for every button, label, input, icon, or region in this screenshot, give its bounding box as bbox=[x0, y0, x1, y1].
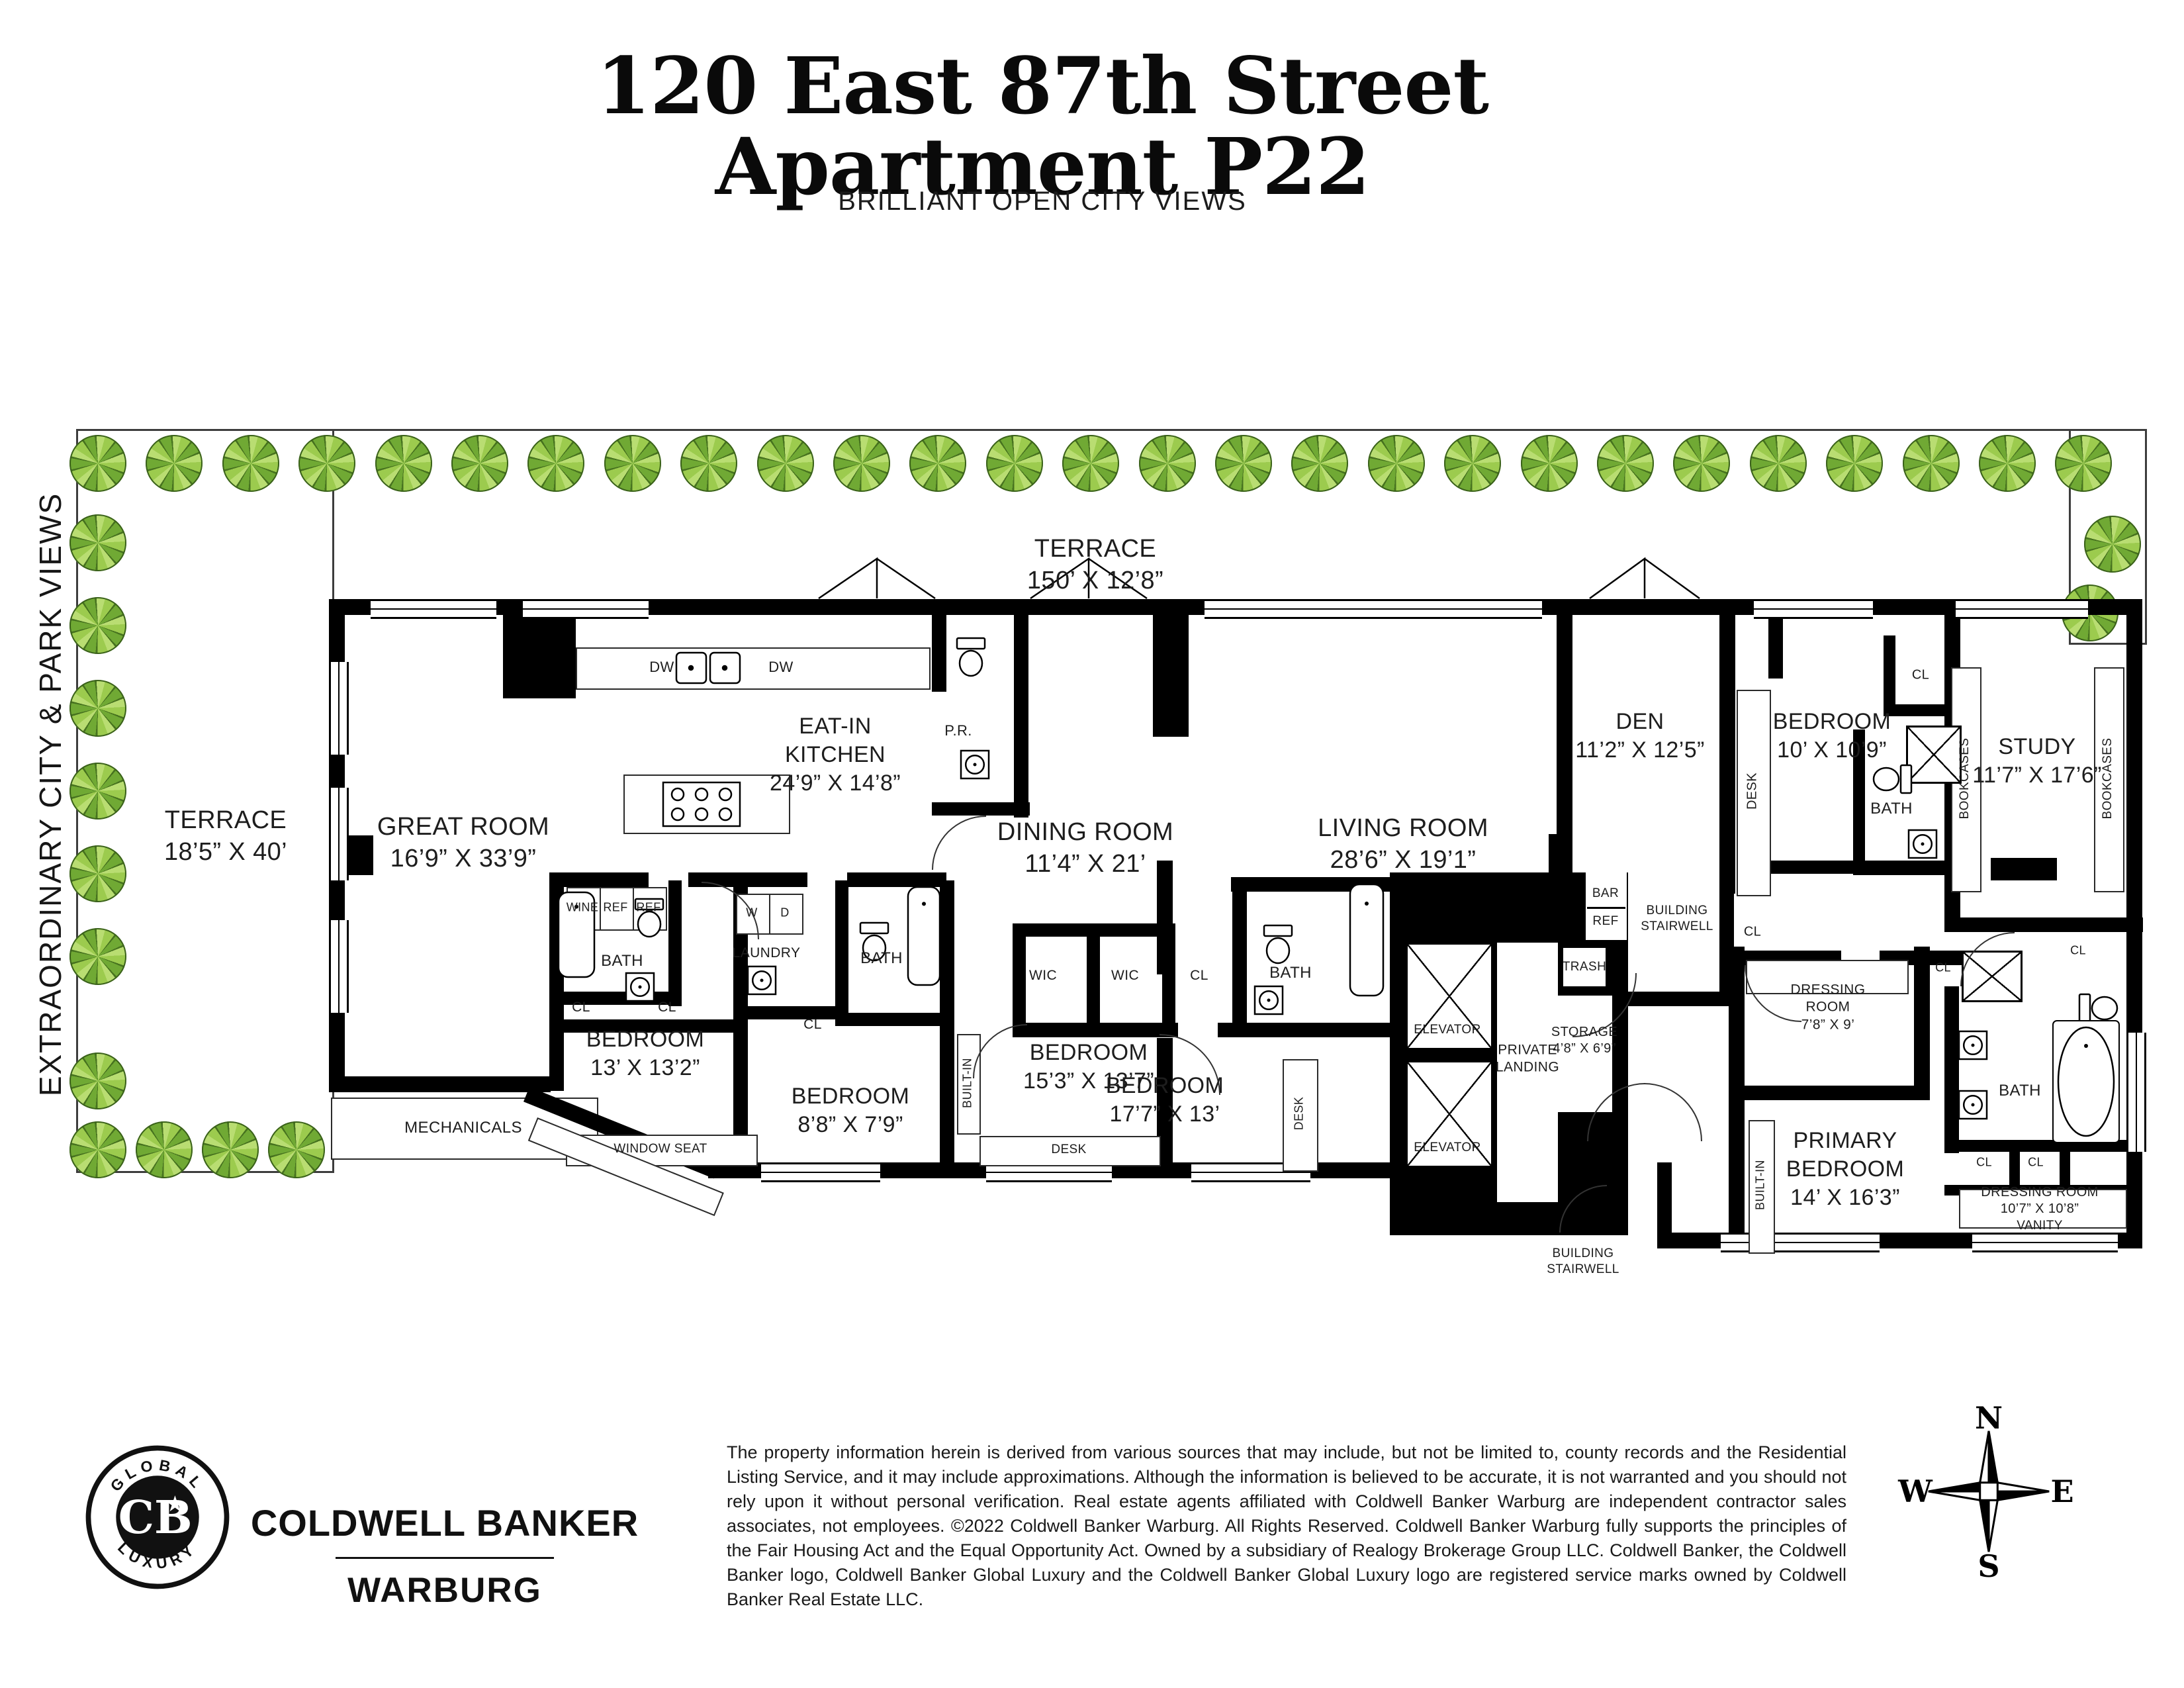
tree-icon bbox=[69, 1053, 126, 1109]
floorplan-page: 120 East 87th Street Apartment P22 BRILL… bbox=[0, 0, 2184, 1688]
brand-name: COLDWELL BANKER bbox=[251, 1501, 639, 1544]
label-ref-2: REF bbox=[636, 900, 660, 915]
window bbox=[329, 662, 349, 755]
label-dw-1: DW bbox=[649, 658, 674, 677]
tree-icon bbox=[1368, 435, 1425, 492]
label-wine: WINE bbox=[567, 900, 599, 915]
wall bbox=[668, 880, 682, 1006]
compass-w: W bbox=[1898, 1474, 1933, 1509]
label-great-room: GREAT ROOM 16’9” X 33’9” bbox=[377, 812, 549, 875]
millwork-outline bbox=[576, 647, 931, 690]
toilet-icon bbox=[1877, 759, 1907, 800]
tree-icon bbox=[375, 435, 432, 492]
label-wic-2: WIC bbox=[1111, 967, 1139, 984]
wall bbox=[733, 1006, 846, 1019]
label-building-stairwell-2: BUILDING STAIRWELL bbox=[1547, 1246, 1619, 1278]
side-view-note: EXTRAORDINARY CITY & PARK VIEWS bbox=[32, 492, 68, 1096]
wall bbox=[329, 1076, 551, 1092]
label-bedroom-17: BEDROOM 17’7” X 13’ bbox=[1106, 1072, 1224, 1129]
page-subtitle: BRILLIANT OPEN CITY VIEWS bbox=[838, 187, 1247, 216]
door-swing-icon bbox=[932, 816, 986, 870]
bathtub-icon bbox=[1349, 883, 1385, 997]
label-cl-7: CL bbox=[1976, 1155, 1992, 1170]
label-desk-15: DESK bbox=[1051, 1142, 1086, 1158]
wall bbox=[1914, 947, 1930, 1100]
door-swing-icon bbox=[1644, 1083, 1702, 1141]
label-terrace-top: TERRACE 150’ X 12’8” bbox=[1027, 534, 1163, 597]
tree-icon bbox=[833, 435, 890, 492]
label-built-in-2: BUILT-IN bbox=[1753, 1160, 1768, 1210]
french-door-icon bbox=[817, 557, 936, 600]
window bbox=[761, 1162, 880, 1182]
label-dressing-room-1: DRESSING ROOM 7’8” X 9’ bbox=[1791, 981, 1866, 1033]
label-cl-4: CL bbox=[1190, 967, 1208, 984]
wall bbox=[1944, 917, 2143, 932]
door-swing-icon bbox=[1960, 932, 2015, 986]
tree-icon bbox=[1903, 435, 1960, 492]
tree-icon bbox=[1291, 435, 1348, 492]
label-trash: TRASH bbox=[1563, 959, 1606, 975]
tree-icon bbox=[757, 435, 814, 492]
tree-icon bbox=[1444, 435, 1501, 492]
wall bbox=[1991, 858, 2057, 880]
label-laundry: LAUNDRY bbox=[733, 945, 801, 962]
label-primary-bedroom: PRIMARY BEDROOM 14’ X 16’3” bbox=[1786, 1127, 1904, 1211]
window bbox=[1721, 1233, 1880, 1252]
tree-icon bbox=[69, 928, 126, 985]
brand-subname: WARBURG bbox=[347, 1570, 542, 1611]
tree-icon bbox=[986, 435, 1043, 492]
label-desk-den: DESK bbox=[1744, 773, 1760, 810]
label-eat-in-kitchen: EAT-IN KITCHEN 24’9” X 14’8” bbox=[770, 712, 901, 797]
legal-disclaimer: The property information herein is deriv… bbox=[727, 1440, 1846, 1612]
label-den: DEN 11’2” X 12’5” bbox=[1575, 708, 1704, 765]
tree-icon bbox=[69, 1121, 126, 1178]
wall bbox=[1628, 992, 1734, 1006]
tree-icon bbox=[451, 435, 508, 492]
window bbox=[2126, 1033, 2146, 1152]
tree-icon bbox=[1139, 435, 1196, 492]
wall bbox=[549, 992, 675, 1005]
label-cl-6: CL bbox=[2070, 943, 2086, 959]
window bbox=[329, 788, 349, 880]
label-building-stairwell-1: BUILDING STAIRWELL bbox=[1641, 903, 1713, 935]
label-terrace-left: TERRACE 18’5” X 40’ bbox=[164, 805, 287, 868]
bathtub-icon bbox=[907, 886, 941, 986]
label-elevator-2: ELEVATOR bbox=[1414, 1140, 1480, 1156]
label-dw-2: DW bbox=[768, 658, 793, 677]
label-washer: W bbox=[746, 906, 757, 921]
wall bbox=[1944, 986, 1959, 1153]
core-room bbox=[1586, 872, 1627, 940]
label-vanity: VANITY bbox=[2017, 1218, 2063, 1234]
tree-icon bbox=[69, 435, 126, 492]
label-bedroom-8: BEDROOM 8’8” X 7’9” bbox=[792, 1082, 909, 1139]
label-dining-room: DINING ROOM 11’4” X 21’ bbox=[997, 817, 1173, 880]
wall bbox=[1153, 599, 1189, 737]
tree-icon bbox=[1750, 435, 1807, 492]
tree-icon bbox=[680, 435, 737, 492]
wall bbox=[932, 599, 946, 692]
tree-icon bbox=[298, 435, 355, 492]
tree-icon bbox=[1521, 435, 1578, 492]
toilet-icon bbox=[956, 637, 986, 678]
tree-icon bbox=[527, 435, 584, 492]
wall bbox=[1013, 923, 1026, 1024]
tree-icon bbox=[69, 514, 126, 571]
tree-icon bbox=[1062, 435, 1119, 492]
window bbox=[1754, 599, 1873, 619]
page-title-line1: 120 East 87th Street bbox=[596, 46, 1488, 126]
wall bbox=[1014, 599, 1028, 818]
kitchen-sink-icon bbox=[675, 651, 741, 684]
label-bath-2: BATH bbox=[860, 949, 903, 968]
label-bath-primary: BATH bbox=[1999, 1081, 2041, 1101]
label-bookcases-left: BOOKCASES bbox=[1957, 738, 1973, 820]
wall bbox=[1013, 1023, 1178, 1037]
tree-icon bbox=[202, 1121, 259, 1178]
label-bath-1: BATH bbox=[601, 951, 643, 971]
sink-icon bbox=[1907, 829, 1938, 859]
tree-icon bbox=[1215, 435, 1272, 492]
sink-icon bbox=[960, 749, 990, 780]
tree-icon bbox=[69, 845, 126, 902]
bar-counter-line bbox=[1587, 907, 1625, 909]
label-wic-1: WIC bbox=[1029, 967, 1057, 984]
wall bbox=[1657, 1162, 1672, 1248]
label-ref-1: REF bbox=[603, 900, 627, 915]
label-living-room: LIVING ROOM 28’6” X 19’1” bbox=[1318, 813, 1488, 876]
label-bar: BAR bbox=[1592, 886, 1619, 902]
label-powder-room: P.R. bbox=[944, 722, 972, 740]
tree-icon bbox=[2055, 435, 2112, 492]
label-mechanicals: MECHANICALS bbox=[404, 1118, 522, 1138]
label-cl-2: CL bbox=[658, 999, 676, 1016]
tree-icon bbox=[136, 1121, 193, 1178]
label-study: STUDY 11’7” X 17’6” bbox=[1972, 733, 2101, 790]
sink-icon bbox=[625, 972, 655, 1002]
label-bedroom-10: BEDROOM 10’ X 10’9” bbox=[1773, 708, 1891, 765]
label-desk-17: DESK bbox=[1292, 1097, 1307, 1131]
tree-icon bbox=[222, 435, 279, 492]
toilet-icon bbox=[1263, 924, 1293, 965]
tree-icon bbox=[1826, 435, 1883, 492]
compass-n: N bbox=[1975, 1400, 2003, 1436]
label-bath-bedroom10: BATH bbox=[1870, 799, 1913, 819]
label-cl-bedroom10: CL bbox=[1912, 667, 1929, 683]
label-storage: STORAGE 4’8” X 6’9” bbox=[1551, 1024, 1617, 1057]
sink-icon bbox=[1958, 1090, 1988, 1120]
tree-icon bbox=[1597, 435, 1654, 492]
tree-icon bbox=[909, 435, 966, 492]
french-door-icon bbox=[1588, 557, 1701, 600]
compass-e: E bbox=[2050, 1474, 2073, 1509]
tree-icon bbox=[69, 597, 126, 654]
label-bookcases-right: BOOKCASES bbox=[2100, 738, 2116, 820]
label-cl-hall: CL bbox=[1744, 923, 1761, 940]
window bbox=[1956, 599, 2088, 619]
svg-text:★: ★ bbox=[165, 1491, 185, 1516]
tree-icon bbox=[146, 435, 203, 492]
wall bbox=[1557, 599, 1572, 884]
label-cl-5: CL bbox=[1935, 961, 1951, 976]
label-window-seat: WINDOW SEAT bbox=[614, 1141, 707, 1157]
wall bbox=[1729, 1086, 1930, 1100]
wall bbox=[835, 880, 848, 1019]
wall bbox=[1218, 1023, 1418, 1037]
label-cl-3: CL bbox=[803, 1016, 822, 1033]
label-bedroom-13: BEDROOM 13’ X 13’2” bbox=[586, 1025, 704, 1082]
compass-s: S bbox=[1978, 1548, 1999, 1584]
tree-icon bbox=[1979, 435, 2036, 492]
tree-icon bbox=[2084, 516, 2141, 573]
tree-icon bbox=[1673, 435, 1730, 492]
label-cl-1: CL bbox=[572, 999, 590, 1016]
wall bbox=[847, 872, 946, 887]
label-private-landing: PRIVATE LANDING bbox=[1496, 1042, 1559, 1077]
window bbox=[1205, 599, 1542, 619]
window bbox=[1972, 1233, 2118, 1252]
label-ref-3: REF bbox=[1592, 914, 1618, 929]
brand-divider bbox=[336, 1557, 554, 1559]
wall bbox=[1087, 923, 1100, 1024]
sink-icon bbox=[1958, 1030, 1988, 1060]
label-dressing-room-2: DRESSING ROOM 10’7” X 10’8” bbox=[1981, 1184, 2098, 1217]
window bbox=[371, 599, 496, 619]
oval-tub-icon bbox=[2052, 1019, 2120, 1144]
xbox-icon bbox=[1906, 726, 1962, 784]
wall bbox=[1719, 599, 1735, 894]
tree-icon bbox=[69, 763, 126, 820]
sink-icon bbox=[1253, 985, 1284, 1015]
sink-icon bbox=[747, 965, 777, 996]
label-built-in-1: BUILT-IN bbox=[960, 1058, 976, 1108]
wall bbox=[835, 1013, 954, 1026]
label-bath-3: BATH bbox=[1269, 963, 1312, 983]
wall bbox=[1232, 877, 1247, 1024]
label-cl-8: CL bbox=[2028, 1155, 2044, 1170]
tree-icon bbox=[604, 435, 661, 492]
cooktop-icon bbox=[662, 781, 741, 827]
tree-icon bbox=[268, 1121, 325, 1178]
window bbox=[523, 599, 649, 619]
window bbox=[329, 920, 349, 1013]
wall bbox=[1162, 923, 1175, 1024]
wall bbox=[549, 872, 649, 887]
tree-icon bbox=[69, 680, 126, 737]
door-swing-icon bbox=[973, 1024, 1027, 1078]
label-dryer: D bbox=[780, 906, 789, 921]
label-elevator-1: ELEVATOR bbox=[1414, 1022, 1480, 1038]
